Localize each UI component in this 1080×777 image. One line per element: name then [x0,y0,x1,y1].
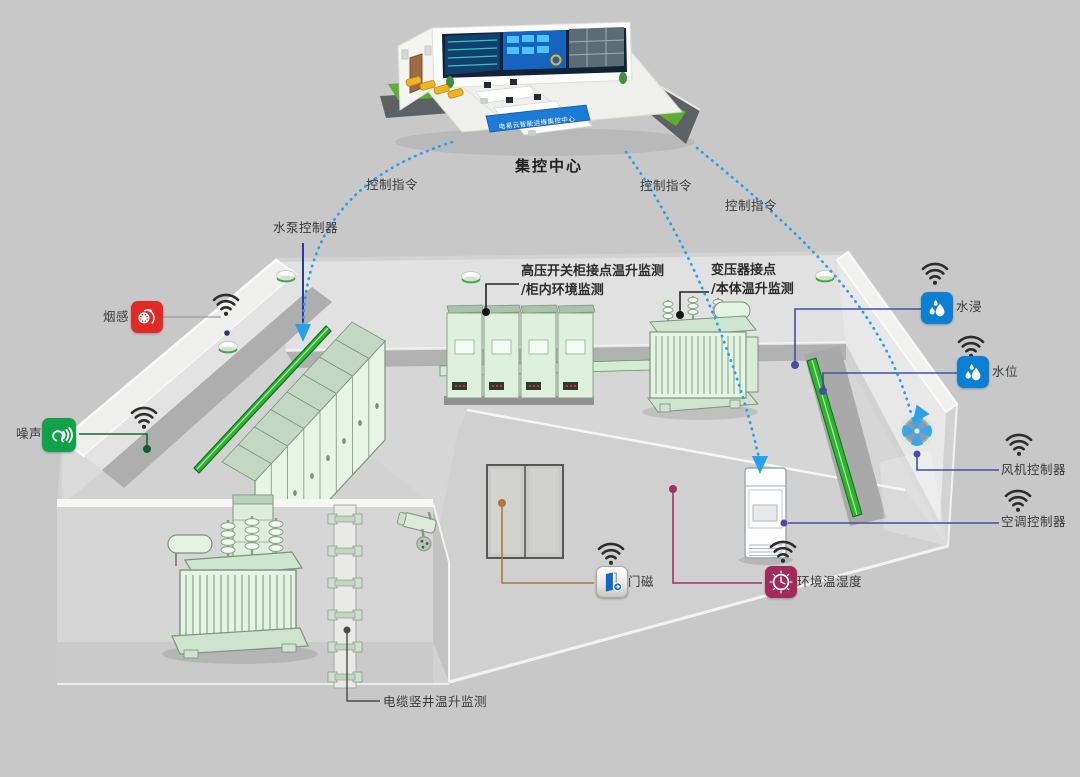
smoke-detector-device [462,272,481,284]
wifi-icon [766,539,800,565]
ac-controller-label: 空调控制器 [1001,515,1066,529]
cable-shaft-label: 电缆竖井温升监测 [383,695,487,709]
switchgear-label-line1: 高压开关柜接点温升监测 [521,265,664,280]
control-center-building [380,22,700,156]
water-level-label: 水位 [992,365,1018,379]
wifi-icon [1002,432,1036,458]
smoke-detector-device [277,271,296,283]
door-magnet-icon [596,566,628,598]
wifi-icon [127,405,161,431]
substation-monitoring-diagram: 集控中心 电易云智能运维集控中心 控制指令 控制指令 控制指令 水泵控制器 烟感… [0,0,1080,777]
wifi-icon [918,261,952,287]
hv-switchgear-row [444,305,595,405]
smoke-sensor-icon [131,301,163,333]
wifi-icon [1001,488,1035,514]
pump-controller-label: 水泵控制器 [273,221,338,235]
command-label-3: 控制指令 [725,199,777,213]
water-level-sensor-icon [957,356,989,388]
env-temp-humidity-label: 环境温湿度 [797,575,862,589]
wifi-icon [594,541,628,567]
door-magnet-label: 门磁 [628,575,654,589]
transformer-label-line2: /本体温升监测 [711,283,794,298]
room-door [487,465,563,558]
smoke-sensor-label: 烟感 [103,310,129,324]
fan-controller-label: 风机控制器 [1001,463,1066,477]
flood-sensor-label: 水浸 [956,300,982,314]
switchgear-label-line2: /柜内环境监测 [521,284,604,299]
env-temp-humidity-icon [765,566,797,598]
noise-sensor-label: 噪声 [16,427,42,441]
transformer-label-line1: 变压器接点 [711,264,776,279]
smoke-detector-device [219,342,238,354]
flood-sensor-icon [921,292,953,324]
wifi-icon [209,292,243,318]
control-center-title: 集控中心 [515,155,583,176]
noise-sensor-icon [42,418,76,452]
command-label-2: 控制指令 [640,179,692,193]
command-label-1: 控制指令 [366,178,418,192]
